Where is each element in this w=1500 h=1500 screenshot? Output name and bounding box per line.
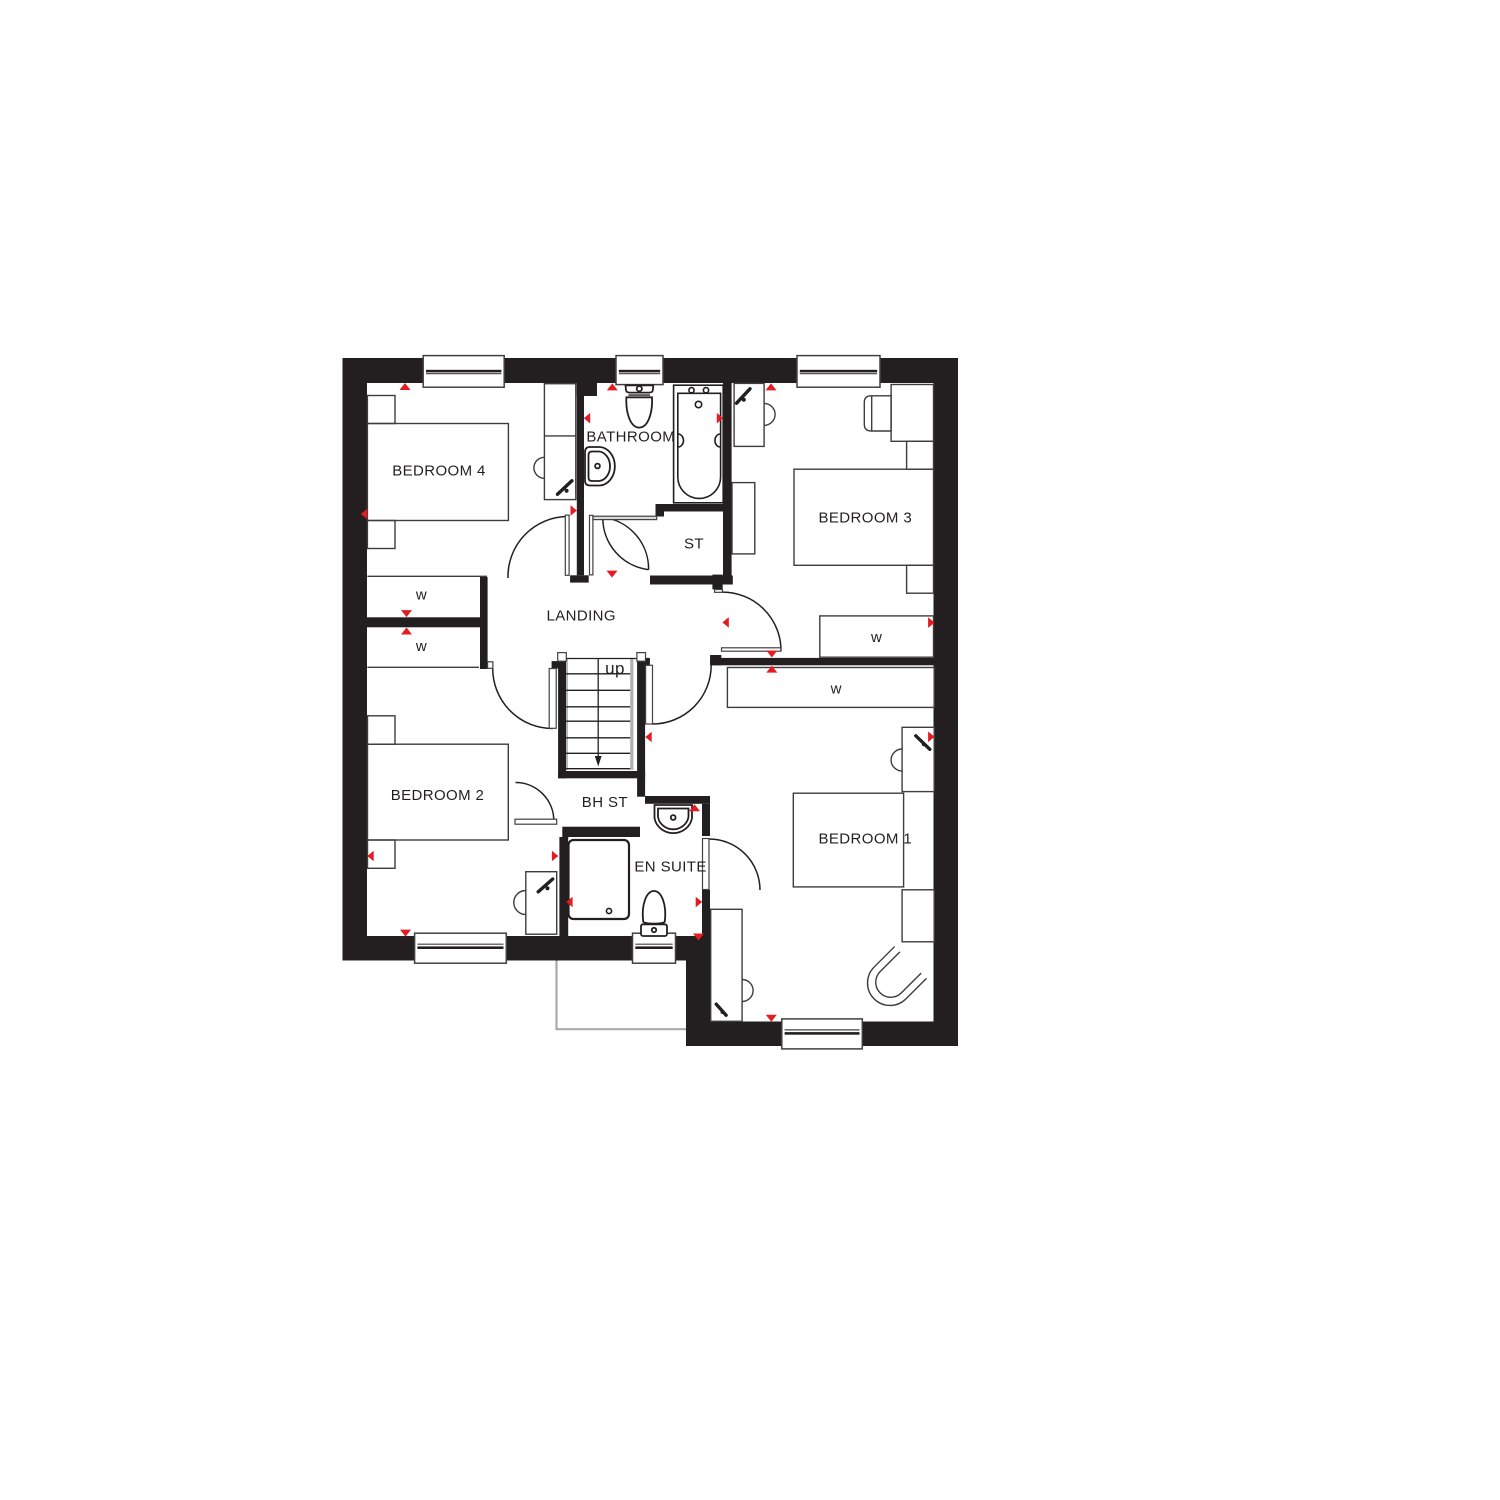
svg-text:BH ST: BH ST [582,794,628,811]
svg-text:LANDING: LANDING [546,608,615,625]
svg-text:BEDROOM 1: BEDROOM 1 [818,831,912,848]
svg-text:up: up [605,659,625,678]
svg-text:w: w [870,629,882,646]
svg-text:EN SUITE: EN SUITE [634,858,706,875]
svg-text:w: w [415,638,427,655]
svg-text:BEDROOM 2: BEDROOM 2 [391,787,485,804]
svg-text:BEDROOM 4: BEDROOM 4 [392,462,486,479]
svg-text:BEDROOM 3: BEDROOM 3 [818,510,912,527]
svg-text:ST: ST [684,536,704,553]
svg-text:w: w [415,587,427,604]
svg-text:BATHROOM: BATHROOM [586,428,675,445]
svg-text:w: w [830,681,842,698]
